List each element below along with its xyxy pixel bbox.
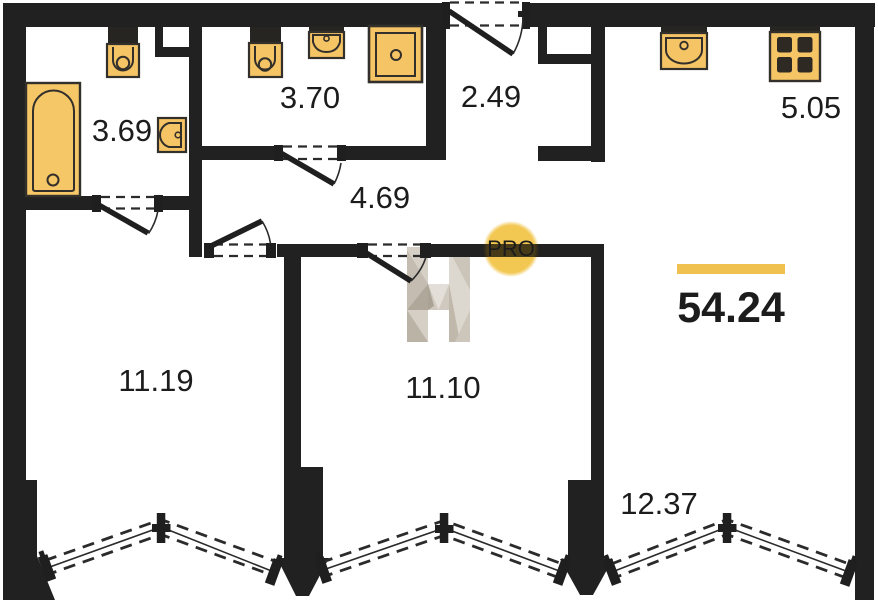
svg-text:54.24: 54.24 <box>677 284 785 332</box>
svg-text:12.37: 12.37 <box>620 486 698 521</box>
svg-text:PRO: PRO <box>487 236 535 261</box>
svg-text:4.69: 4.69 <box>350 180 410 215</box>
svg-text:2.49: 2.49 <box>461 79 521 114</box>
svg-text:11.19: 11.19 <box>118 363 193 398</box>
svg-text:3.70: 3.70 <box>280 80 340 115</box>
svg-text:11.10: 11.10 <box>405 370 480 405</box>
svg-text:5.05: 5.05 <box>781 90 841 125</box>
svg-text:3.69: 3.69 <box>92 113 152 148</box>
